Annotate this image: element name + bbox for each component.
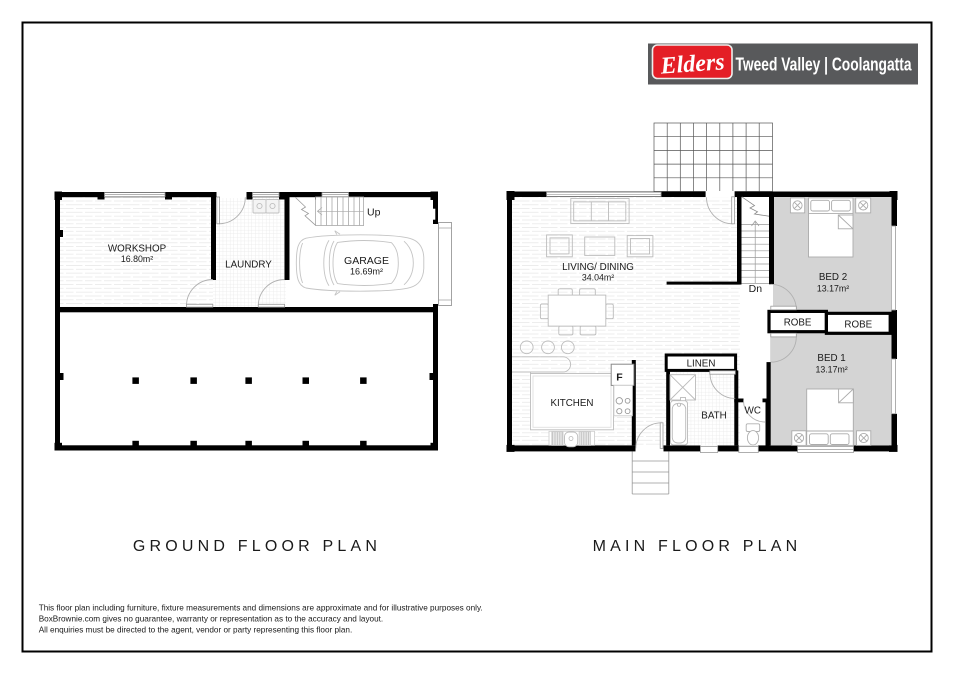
svg-text:BATH: BATH xyxy=(701,411,726,422)
svg-text:16.69m²: 16.69m² xyxy=(350,267,383,277)
svg-text:BoxBrownie.com gives no guaran: BoxBrownie.com gives no guarantee, warra… xyxy=(39,615,384,624)
svg-text:MAIN FLOOR PLAN: MAIN FLOOR PLAN xyxy=(593,538,802,555)
svg-text:Tweed Valley | Coolangatta: Tweed Valley | Coolangatta xyxy=(736,55,913,75)
svg-text:BED 1: BED 1 xyxy=(817,353,845,364)
svg-text:34.04m²: 34.04m² xyxy=(582,273,614,283)
svg-text:ROBE: ROBE xyxy=(844,320,872,331)
svg-text:F: F xyxy=(616,372,623,384)
svg-text:LAUNDRY: LAUNDRY xyxy=(225,260,272,271)
svg-text:WORKSHOP: WORKSHOP xyxy=(108,244,167,255)
svg-text:13.17m²: 13.17m² xyxy=(817,284,849,294)
svg-text:16.80m²: 16.80m² xyxy=(121,254,153,264)
svg-text:LIVING/ DINING: LIVING/ DINING xyxy=(562,262,634,273)
svg-text:Up: Up xyxy=(367,207,381,219)
svg-text:ROBE: ROBE xyxy=(784,318,812,329)
svg-text:This floor plan including furn: This floor plan including furniture, fix… xyxy=(39,604,483,613)
svg-text:Dn: Dn xyxy=(749,283,763,295)
svg-text:WC: WC xyxy=(745,406,761,417)
svg-text:GROUND FLOOR PLAN: GROUND FLOOR PLAN xyxy=(133,538,381,555)
svg-text:GARAGE: GARAGE xyxy=(344,255,389,267)
svg-text:KITCHEN: KITCHEN xyxy=(550,398,593,409)
svg-text:Elders: Elders xyxy=(659,49,726,79)
svg-text:LINEN: LINEN xyxy=(687,359,716,370)
svg-text:13.17m²: 13.17m² xyxy=(815,364,847,374)
svg-text:All enquiries must be directed: All enquiries must be directed to the ag… xyxy=(39,626,353,635)
svg-text:BED 2: BED 2 xyxy=(819,272,847,283)
